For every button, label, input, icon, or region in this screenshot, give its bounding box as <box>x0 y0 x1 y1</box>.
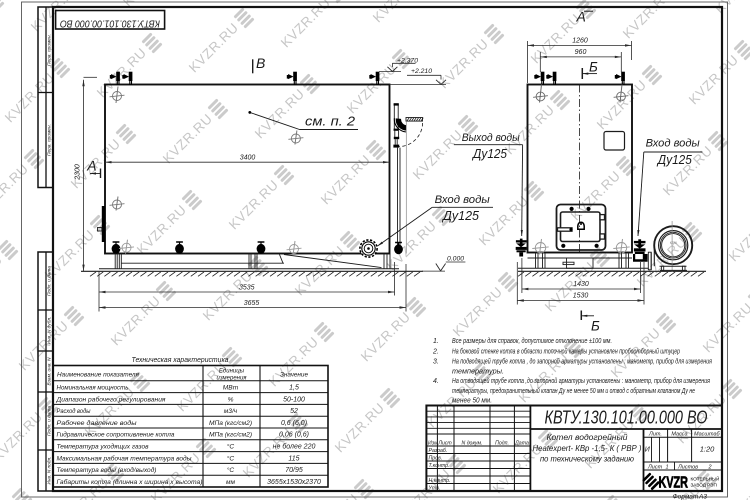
svg-text:Б: Б <box>591 319 600 334</box>
svg-text:Подп. и дата: Подп. и дата <box>47 266 53 296</box>
svg-text:1:20: 1:20 <box>700 445 715 454</box>
svg-text:Heatexpert- КВр -1,5- К ( РВР: Heatexpert- КВр -1,5- К ( РВР ) <box>533 444 642 453</box>
svg-text:KVZR.RU: KVZR.RU <box>186 20 241 75</box>
svg-text:На отводящей трубе котла ,до з: На отводящей трубе котла ,до запорной ар… <box>452 377 710 385</box>
svg-text:KVZR.RU: KVZR.RU <box>318 152 373 207</box>
svg-text:KVZR.RU: KVZR.RU <box>344 61 399 116</box>
svg-text:Пров.: Пров. <box>429 456 443 462</box>
svg-text:Т.контр.: Т.контр. <box>429 463 450 469</box>
svg-text:KVZR.RU: KVZR.RU <box>200 268 255 323</box>
svg-text:Инв. N дубл.: Инв. N дубл. <box>47 317 53 345</box>
svg-text:Ду125: Ду125 <box>441 209 479 223</box>
svg-text:KVZR.RU: KVZR.RU <box>568 168 623 223</box>
svg-text:см. п. 2: см. п. 2 <box>305 115 355 129</box>
svg-text:4.: 4. <box>433 378 439 385</box>
svg-text:Утв.: Утв. <box>429 486 441 492</box>
svg-text:Подп.: Подп. <box>495 440 509 446</box>
svg-text:KVZR.RU: KVZR.RU <box>292 243 347 298</box>
svg-text:0,6 (6,0): 0,6 (6,0) <box>281 420 307 427</box>
svg-text:KVZR: KVZR <box>659 474 689 491</box>
svg-text:Все размеры для справок, допус: Все размеры для справок, допустимое откл… <box>452 337 612 345</box>
svg-text:Формат: Формат <box>673 494 699 500</box>
svg-text:KVZR.RU: KVZR.RU <box>252 86 307 141</box>
svg-text:KVZR.RU: KVZR.RU <box>740 457 750 500</box>
svg-text:менее 50 мм.: менее 50 мм. <box>452 398 492 405</box>
svg-text:1: 1 <box>665 464 668 470</box>
svg-text:На подводящей трубе котла , д: На подводящей трубе котла , до запорной … <box>452 358 712 366</box>
svg-text:Лист: Лист <box>647 464 663 470</box>
svg-text:+2.210: +2.210 <box>411 68 432 75</box>
svg-text:температуры, предохранительный: температуры, предохранительный клапан Ду… <box>452 387 695 395</box>
svg-text:1,5: 1,5 <box>289 385 299 392</box>
svg-text:%: % <box>228 396 234 403</box>
svg-text:Подп. и дата: Подп. и дата <box>47 406 53 436</box>
svg-text:Ду125: Ду125 <box>656 153 692 167</box>
svg-text:N докум.: N докум. <box>462 440 483 446</box>
svg-text:измерения: измерения <box>216 375 247 381</box>
svg-text:Листов: Листов <box>677 464 698 470</box>
svg-text:Изм: Изм <box>428 440 438 446</box>
svg-text:Ду125: Ду125 <box>471 147 507 161</box>
svg-text:Рабочее давление воды: Рабочее давление воды <box>57 419 137 427</box>
svg-text:0,06 (0,6): 0,06 (0,6) <box>279 432 309 439</box>
svg-text:3.: 3. <box>433 359 439 366</box>
svg-text:KVZR.RU: KVZR.RU <box>542 259 597 314</box>
svg-text:Расход воды: Расход воды <box>57 407 91 415</box>
svg-text:KVZR.RU: KVZR.RU <box>384 218 439 273</box>
svg-text:МПа (кгс/см2): МПа (кгс/см2) <box>209 432 252 439</box>
svg-text:Разраб.: Разраб. <box>429 448 448 454</box>
svg-text:ЗАВОД РЭП: ЗАВОД РЭП <box>691 482 717 487</box>
svg-text:МВт: МВт <box>223 385 239 392</box>
svg-text:1430: 1430 <box>573 281 589 288</box>
svg-text:И: И <box>645 447 651 454</box>
svg-text:2: 2 <box>707 464 711 470</box>
svg-text:На боковой стенке котла в обла: На боковой стенке котла в области топочн… <box>452 348 680 356</box>
svg-text:50-100: 50-100 <box>283 396 305 403</box>
svg-text:КОТЕЛЬНЫЙ: КОТЕЛЬНЫЙ <box>691 475 720 482</box>
svg-text:МПа (кгс/см2): МПа (кгс/см2) <box>209 420 252 427</box>
svg-text:Н.контр.: Н.контр. <box>429 478 451 484</box>
svg-text:Вход воды: Вход воды <box>435 194 490 206</box>
svg-text:КДМ: КДМ <box>670 241 677 245</box>
svg-text:KVZR.RU: KVZR.RU <box>436 36 491 91</box>
svg-text:2.: 2. <box>432 349 439 356</box>
svg-text:KVZR.RU: KVZR.RU <box>0 252 5 307</box>
svg-text:Температура воды (вход/выход): Температура воды (вход/выход) <box>57 466 157 474</box>
svg-text:А: А <box>576 8 586 24</box>
svg-text:Номинальная мощность: Номинальная мощность <box>57 385 129 392</box>
svg-text:KVZR.RU: KVZR.RU <box>174 359 229 414</box>
svg-text:KVZR.RU: KVZR.RU <box>358 309 413 364</box>
svg-text:KVZR.RU: KVZR.RU <box>450 284 505 339</box>
svg-text:Габариты котла (длинна х ширин: Габариты котла (длинна х ширина х высота… <box>57 478 203 486</box>
svg-text:3535: 3535 <box>239 284 255 291</box>
svg-text:В: В <box>256 55 265 71</box>
svg-text:1.: 1. <box>433 338 439 345</box>
svg-text:Котел водогрейный: Котел водогрейный <box>547 433 629 442</box>
svg-text:KVZR.RU: KVZR.RU <box>660 143 715 198</box>
svg-text:KVZR.RU: KVZR.RU <box>726 209 750 264</box>
svg-text:Выход воды: Выход воды <box>462 132 520 144</box>
svg-text:Диапазон рабочего регулировани: Диапазон рабочего регулирования <box>56 395 166 403</box>
svg-text:2300: 2300 <box>75 164 82 181</box>
svg-text:70/95: 70/95 <box>285 467 303 474</box>
svg-text:Масштаб: Масштаб <box>694 431 721 437</box>
svg-text:°С: °С <box>227 454 235 462</box>
svg-text:KVZR.RU: KVZR.RU <box>160 111 215 166</box>
svg-text:Перв. примен.: Перв. примен. <box>47 124 53 156</box>
svg-text:КВТУ.130.101.00.000 ВО: КВТУ.130.101.00.000 ВО <box>60 17 160 29</box>
svg-text:мм: мм <box>226 479 236 486</box>
svg-text:Единицы: Единицы <box>219 369 245 375</box>
svg-text:3400: 3400 <box>240 154 256 161</box>
svg-text:Инв. N подл.: Инв. N подл. <box>47 456 53 484</box>
svg-text:Техническая характеристика: Техническая характеристика <box>132 357 229 364</box>
svg-text:52: 52 <box>290 408 298 415</box>
svg-text:Гидравлическое сопротивление к: Гидравлическое сопротивление котла <box>57 431 175 439</box>
svg-text:Лит.: Лит. <box>648 431 662 437</box>
svg-text:KVZR.RU: KVZR.RU <box>502 102 557 157</box>
svg-text:температуры.: температуры. <box>452 369 504 376</box>
svg-text:Температура уходящих газов: Температура уходящих газов <box>57 443 149 451</box>
svg-text:А: А <box>86 158 96 174</box>
svg-text:KVZR.RU: KVZR.RU <box>0 161 31 216</box>
svg-text:KVZR.RU: KVZR.RU <box>700 300 750 355</box>
svg-text:Наименование показателя: Наименование показателя <box>57 372 140 379</box>
svg-text:Взам. инв. N: Взам. инв. N <box>47 357 53 385</box>
svg-text:по техническому заданию: по техническому заданию <box>540 455 634 464</box>
svg-text:KVZR.RU: KVZR.RU <box>332 400 387 455</box>
svg-text:KVZR.RU: KVZR.RU <box>370 0 425 25</box>
svg-text:KVZR.RU: KVZR.RU <box>108 293 163 348</box>
svg-text:Б: Б <box>589 60 598 75</box>
svg-text:Перв. примен.: Перв. примен. <box>47 34 53 66</box>
svg-text:KVZR.RU: KVZR.RU <box>2 70 57 125</box>
svg-text:960: 960 <box>575 49 587 56</box>
svg-text:Вход воды: Вход воды <box>646 138 700 150</box>
svg-text:3655х1530х2370: 3655х1530х2370 <box>267 479 321 486</box>
svg-text:°С: °С <box>227 443 235 451</box>
svg-text:°С: °С <box>227 466 235 474</box>
svg-text:KVZR.RU: KVZR.RU <box>306 491 361 500</box>
svg-text:3655: 3655 <box>244 300 260 307</box>
svg-text:Дата: Дата <box>514 440 529 446</box>
svg-text:KVZR.RU: KVZR.RU <box>226 177 281 232</box>
svg-text:1530: 1530 <box>573 293 589 300</box>
svg-text:KVZR.RU: KVZR.RU <box>410 127 465 182</box>
svg-text:Масса: Масса <box>671 431 687 437</box>
svg-text:1260: 1260 <box>572 38 588 45</box>
svg-text:KVZR.RU: KVZR.RU <box>712 0 750 16</box>
svg-text:не более 220: не более 220 <box>273 443 316 451</box>
svg-text:KVZR.RU: KVZR.RU <box>686 52 741 107</box>
svg-text:м3/ч: м3/ч <box>224 408 238 415</box>
svg-text:Значение: Значение <box>280 372 308 379</box>
svg-text:Максимальная рабочая температу: Максимальная рабочая температура воды <box>57 454 192 462</box>
svg-text:А3: А3 <box>698 494 707 500</box>
svg-text:115: 115 <box>288 455 299 462</box>
svg-text:KVZR.RU: KVZR.RU <box>94 45 149 100</box>
svg-text:КВТУ.130.101.00.000 ВО: КВТУ.130.101.00.000 ВО <box>545 408 708 428</box>
svg-text:Лист: Лист <box>437 440 452 446</box>
